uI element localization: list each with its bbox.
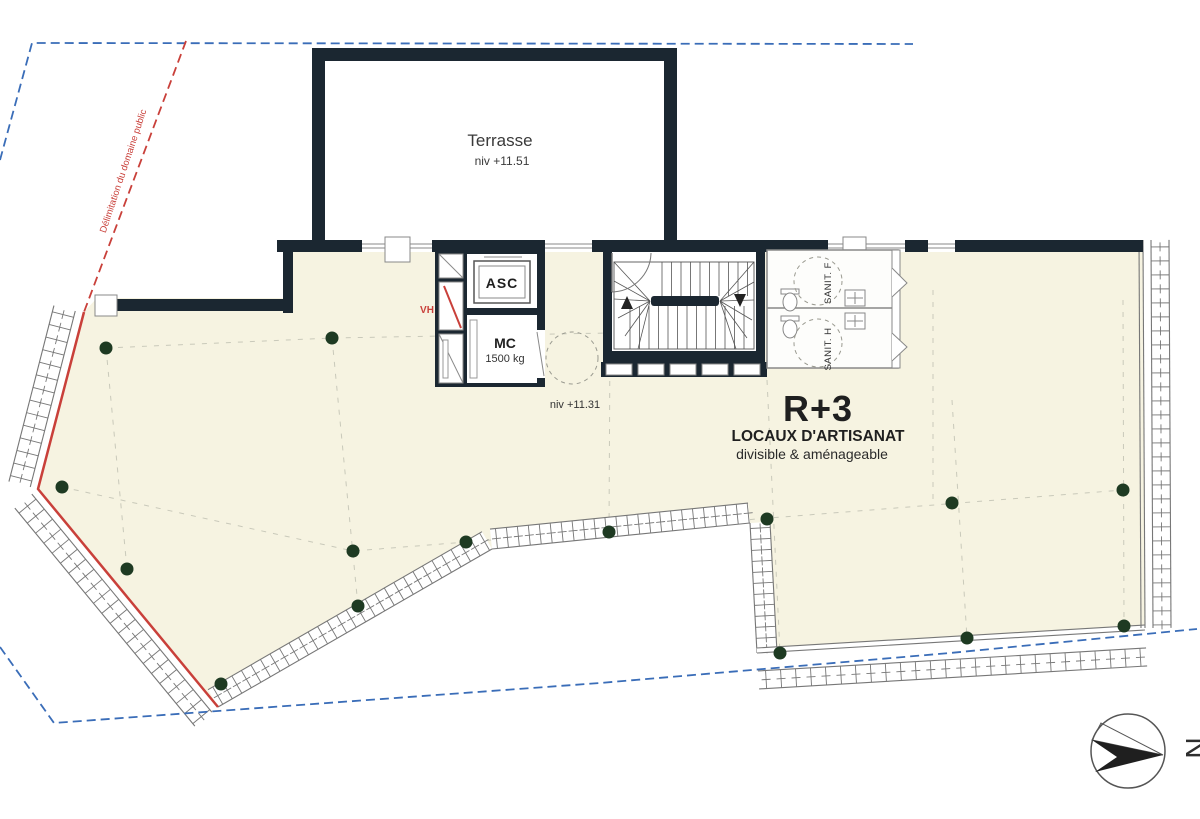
stairwell <box>601 252 767 377</box>
terrace-wall-left <box>312 48 325 243</box>
freight-capacity: 1500 kg <box>485 353 524 365</box>
sanitary-men-label: SANIT. H <box>823 327 834 370</box>
floor-subtitle: LOCAUX D'ARTISANAT <box>731 428 905 445</box>
main-level-label: niv +11.31 <box>550 399 600 411</box>
freight-label: MC <box>494 335 516 351</box>
terrace-level-label: niv +11.51 <box>475 154 530 168</box>
elevator-asc: ASC <box>467 254 537 308</box>
terrace-wall-top <box>312 48 677 61</box>
sanitary-block: SANIT. F SANIT. H <box>767 250 907 371</box>
floor-note: divisible & aménageable <box>736 446 888 462</box>
terrace-wall-right <box>664 48 677 243</box>
vh-duct-label: VH <box>420 305 434 316</box>
public-domain-boundary: Délimitation du domaine public <box>84 41 186 312</box>
technical-shafts <box>439 254 463 383</box>
floor-title: R+3 <box>783 388 853 429</box>
north-arrow: N <box>1091 714 1200 788</box>
floor-plan-drawing: Terrasse niv +11.51 <box>0 0 1200 819</box>
stair-landing-rail <box>651 296 719 306</box>
north-label: N <box>1179 737 1200 759</box>
public-domain-label: Délimitation du domaine public <box>98 108 150 234</box>
core-block: ASC MC 1500 kg <box>435 250 545 387</box>
northwest-wall <box>115 299 293 311</box>
terrace-room: Terrasse niv +11.51 <box>312 48 677 243</box>
freight-elevator-mc: MC 1500 kg <box>467 315 545 383</box>
elevator-label: ASC <box>486 275 519 291</box>
north-arrow-pointer <box>1092 740 1163 772</box>
floor-plan-sheet: Terrasse niv +11.51 <box>0 0 1200 819</box>
terrace-label: Terrasse <box>467 131 532 150</box>
stair-window-band <box>601 362 767 377</box>
wall-end-cap <box>95 295 117 316</box>
sanitary-women-label: SANIT. F <box>823 262 834 304</box>
